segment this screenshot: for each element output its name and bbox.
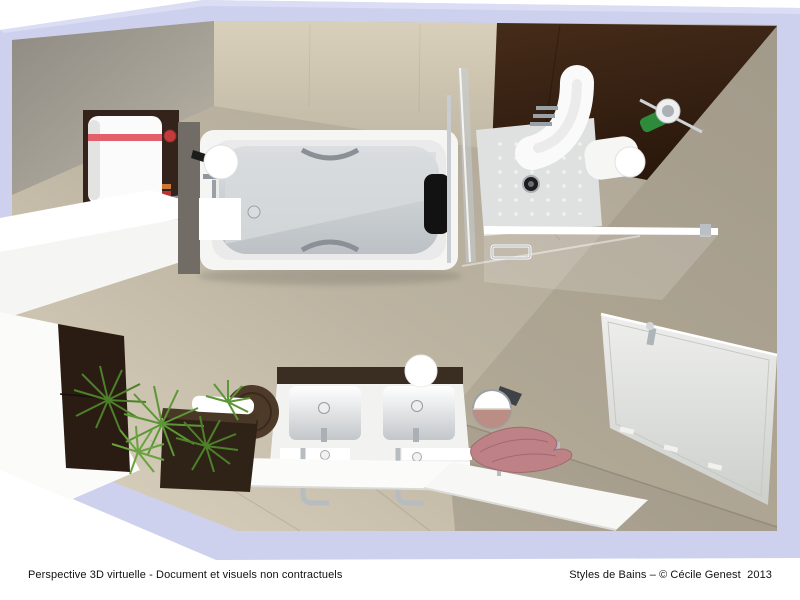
- drain-reflection-left: [321, 451, 330, 460]
- water-heater: [83, 110, 179, 208]
- tub-drain: [248, 206, 260, 218]
- showerhead-sphere: [615, 147, 645, 177]
- vanity-sphere-light: [405, 355, 437, 387]
- sphere-wall-light: [204, 145, 238, 179]
- basin-left-drain: [319, 403, 330, 414]
- divider-frame: [447, 95, 451, 263]
- basin-right-drain: [412, 401, 423, 412]
- credit-text: Styles de Bains – © Cécile Genest 2013: [569, 569, 772, 581]
- radiator-valve-cap: [646, 322, 654, 330]
- heater-pipe-1: [161, 184, 171, 189]
- shower-drain-cap: [528, 181, 534, 187]
- dark-wall-cabinet: [58, 324, 130, 472]
- bathroom-3d-render: Perspective 3D virtuelle - Document et v…: [0, 0, 800, 600]
- shelf-jar-lid: [662, 105, 674, 117]
- heater-tank-shade: [88, 120, 100, 200]
- heater-valve: [164, 130, 176, 142]
- tub-side-shadow: [178, 122, 200, 274]
- water-heater-red-stripe: [88, 134, 162, 141]
- faucet-stub-right: [413, 428, 419, 442]
- disclaimer-text: Perspective 3D virtuelle - Document et v…: [28, 569, 342, 581]
- scene: [0, 0, 800, 600]
- bathtub-headrest: [424, 174, 450, 234]
- rail-left: [280, 448, 350, 460]
- bathtub: [191, 130, 462, 285]
- tub-ledge: [199, 198, 241, 240]
- drain-reflection-right: [413, 453, 422, 462]
- faucet-stub-left: [321, 428, 327, 442]
